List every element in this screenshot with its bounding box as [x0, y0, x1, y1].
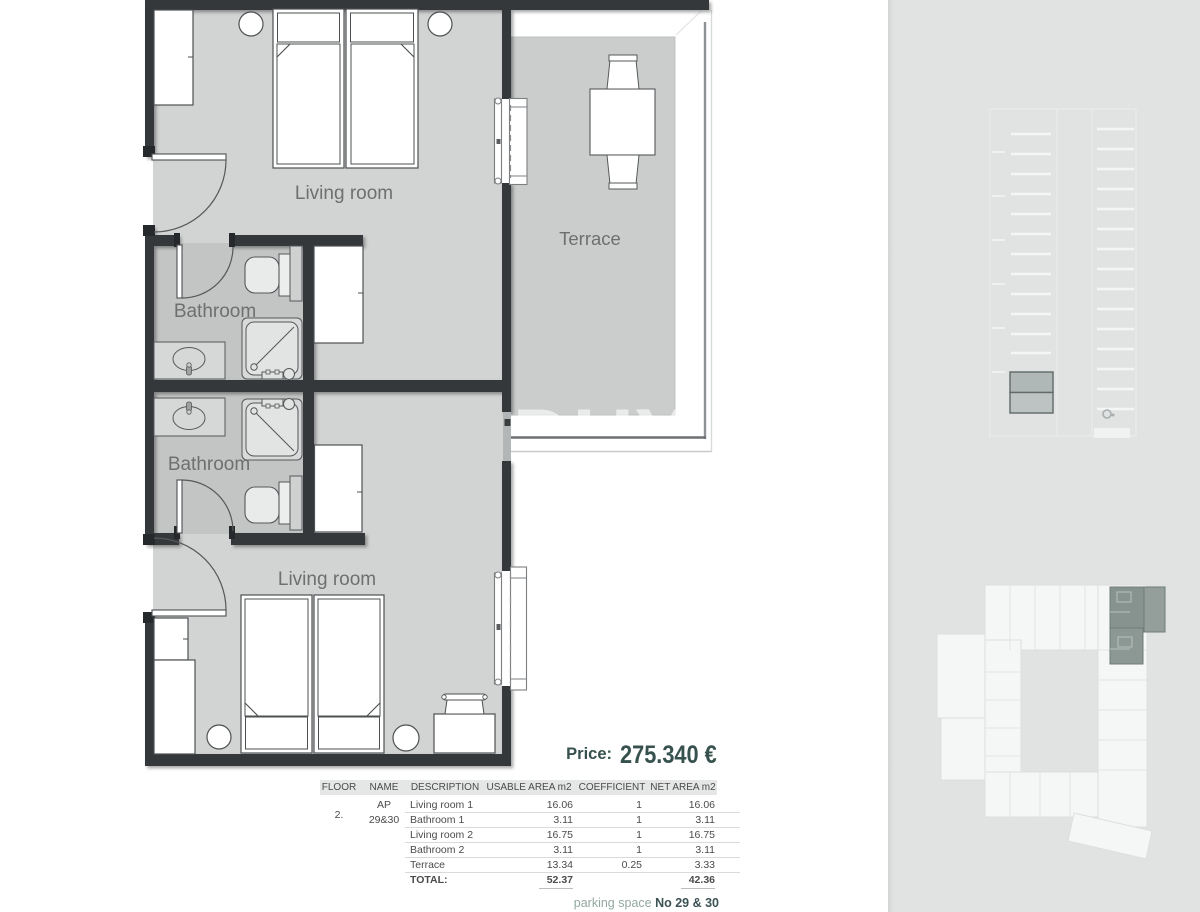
svg-text:Bathroom: Bathroom [168, 454, 250, 475]
svg-text:Terrace: Terrace [559, 228, 621, 249]
svg-text:Living room: Living room [295, 183, 393, 204]
svg-text:DUX: DUX [513, 389, 690, 494]
svg-text:Bathroom: Bathroom [174, 301, 256, 322]
svg-text:Living room: Living room [278, 569, 376, 590]
svg-text:REAL ESTATE: REAL ESTATE [540, 484, 658, 501]
